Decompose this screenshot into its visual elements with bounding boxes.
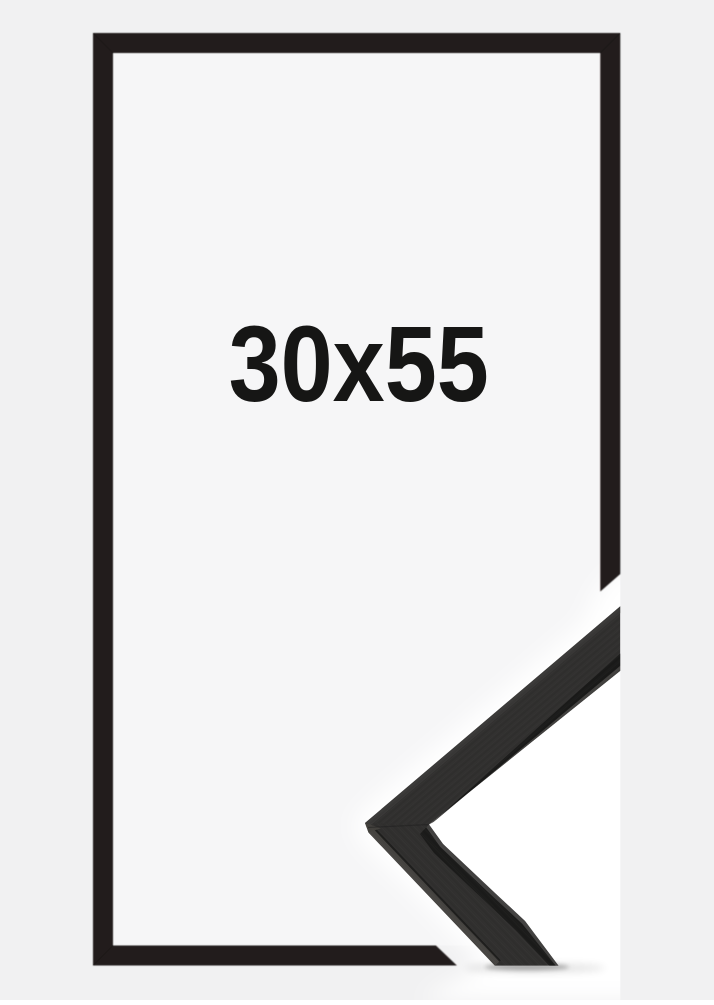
svg-text:30x55: 30x55 <box>229 305 489 424</box>
